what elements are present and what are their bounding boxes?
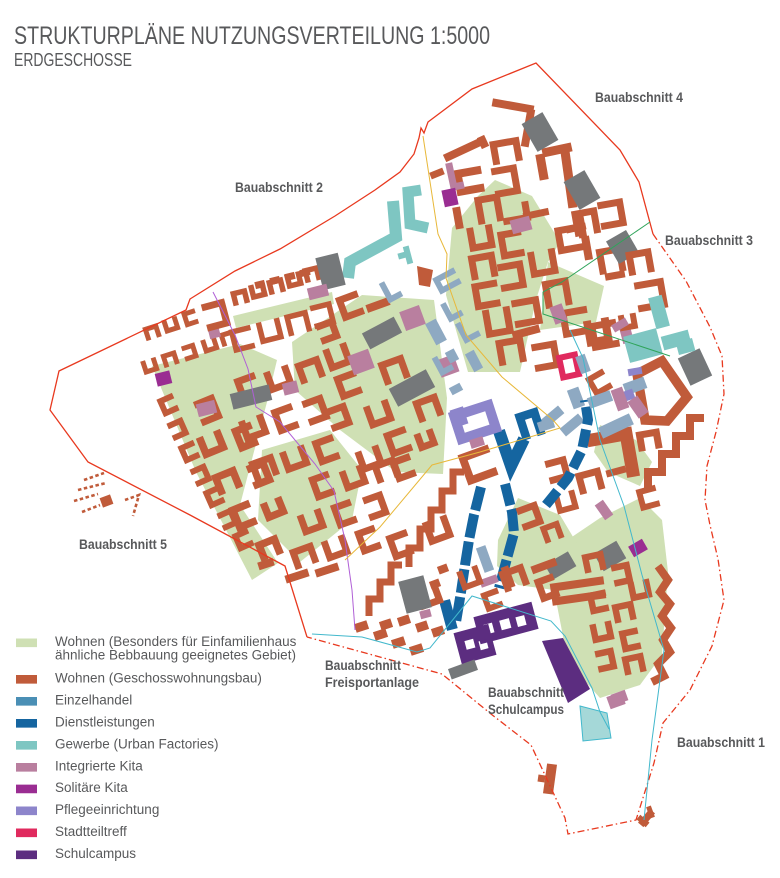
svg-text:Bauabschnitt 1: Bauabschnitt 1 — [677, 735, 765, 750]
svg-text:Schulcampus: Schulcampus — [488, 702, 564, 717]
svg-text:Einzelhandel: Einzelhandel — [55, 693, 132, 708]
svg-text:Bauabschnitt: Bauabschnitt — [325, 658, 401, 673]
svg-text:Bauabschnitt 2: Bauabschnitt 2 — [235, 180, 323, 195]
svg-text:Dienstleistungen: Dienstleistungen — [55, 715, 155, 730]
svg-text:Schulcampus: Schulcampus — [55, 846, 136, 861]
svg-text:Bauabschnitt 5: Bauabschnitt 5 — [79, 537, 167, 552]
svg-text:Integrierte Kita: Integrierte Kita — [55, 759, 143, 774]
svg-text:Pflegeeinrichtung: Pflegeeinrichtung — [55, 802, 159, 817]
svg-text:Bauabschnitt: Bauabschnitt — [488, 685, 564, 700]
svg-text:Freisportanlage: Freisportanlage — [325, 675, 419, 690]
svg-text:Bauabschnitt 4: Bauabschnitt 4 — [595, 90, 683, 105]
svg-text:Solitäre Kita: Solitäre Kita — [55, 780, 128, 795]
svg-text:Gewerbe (Urban Factories): Gewerbe (Urban Factories) — [55, 737, 219, 752]
svg-text:Stadtteiltreff: Stadtteiltreff — [55, 824, 127, 839]
svg-text:ähnliche Bebbauung geeignetes: ähnliche Bebbauung geeignetes Gebiet) — [55, 648, 296, 663]
svg-text:Wohnen (Geschosswohnungsbau): Wohnen (Geschosswohnungsbau) — [55, 671, 262, 686]
svg-text:STRUKTURPLÄNE NUTZUNGSVERTEILU: STRUKTURPLÄNE NUTZUNGSVERTEILUNG 1:5000 — [14, 22, 490, 50]
svg-text:Bauabschnitt 3: Bauabschnitt 3 — [665, 233, 753, 248]
svg-text:ERDGESCHOSSE: ERDGESCHOSSE — [14, 50, 132, 70]
